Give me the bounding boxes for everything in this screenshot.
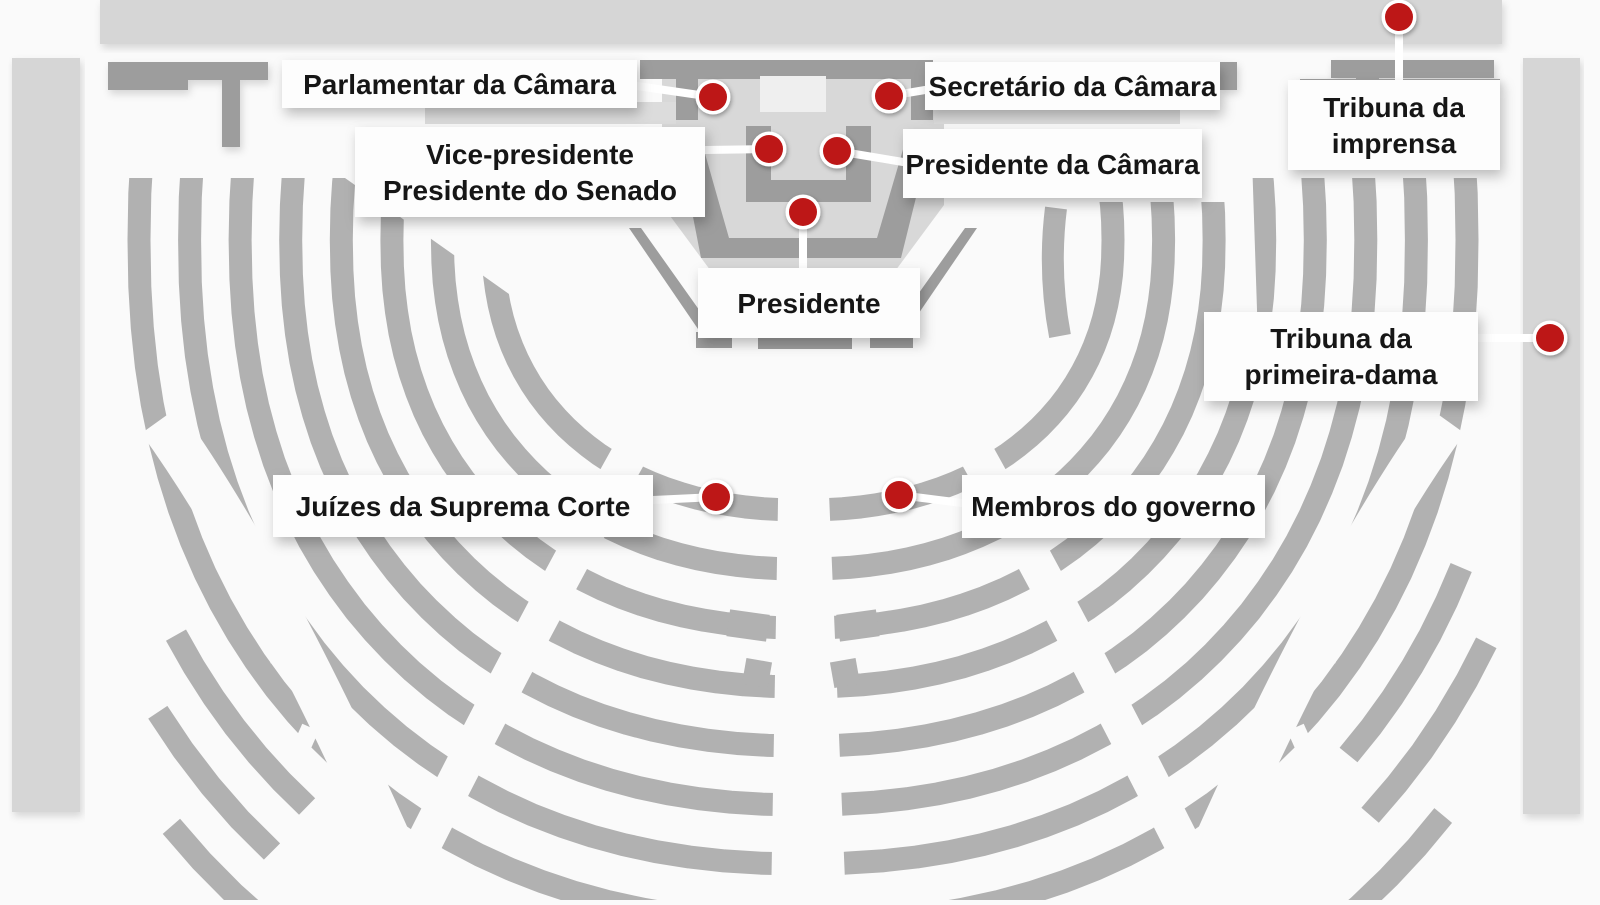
svg-text:Juízes da Suprema Corte: Juízes da Suprema Corte: [296, 491, 631, 522]
svg-text:Tribuna da: Tribuna da: [1323, 92, 1465, 123]
svg-text:Parlamentar da Câmara: Parlamentar da Câmara: [303, 69, 616, 100]
svg-text:Membros do governo: Membros do governo: [971, 491, 1256, 522]
svg-text:Presidente: Presidente: [737, 288, 880, 319]
svg-text:Vice-presidente: Vice-presidente: [426, 139, 634, 170]
svg-text:imprensa: imprensa: [1332, 128, 1457, 159]
svg-text:Tribuna da: Tribuna da: [1270, 323, 1412, 354]
svg-text:primeira-dama: primeira-dama: [1245, 359, 1438, 390]
svg-text:Presidente da Câmara: Presidente da Câmara: [905, 149, 1200, 180]
svg-text:Secretário da Câmara: Secretário da Câmara: [929, 71, 1217, 102]
svg-text:Presidente do Senado: Presidente do Senado: [383, 175, 677, 206]
